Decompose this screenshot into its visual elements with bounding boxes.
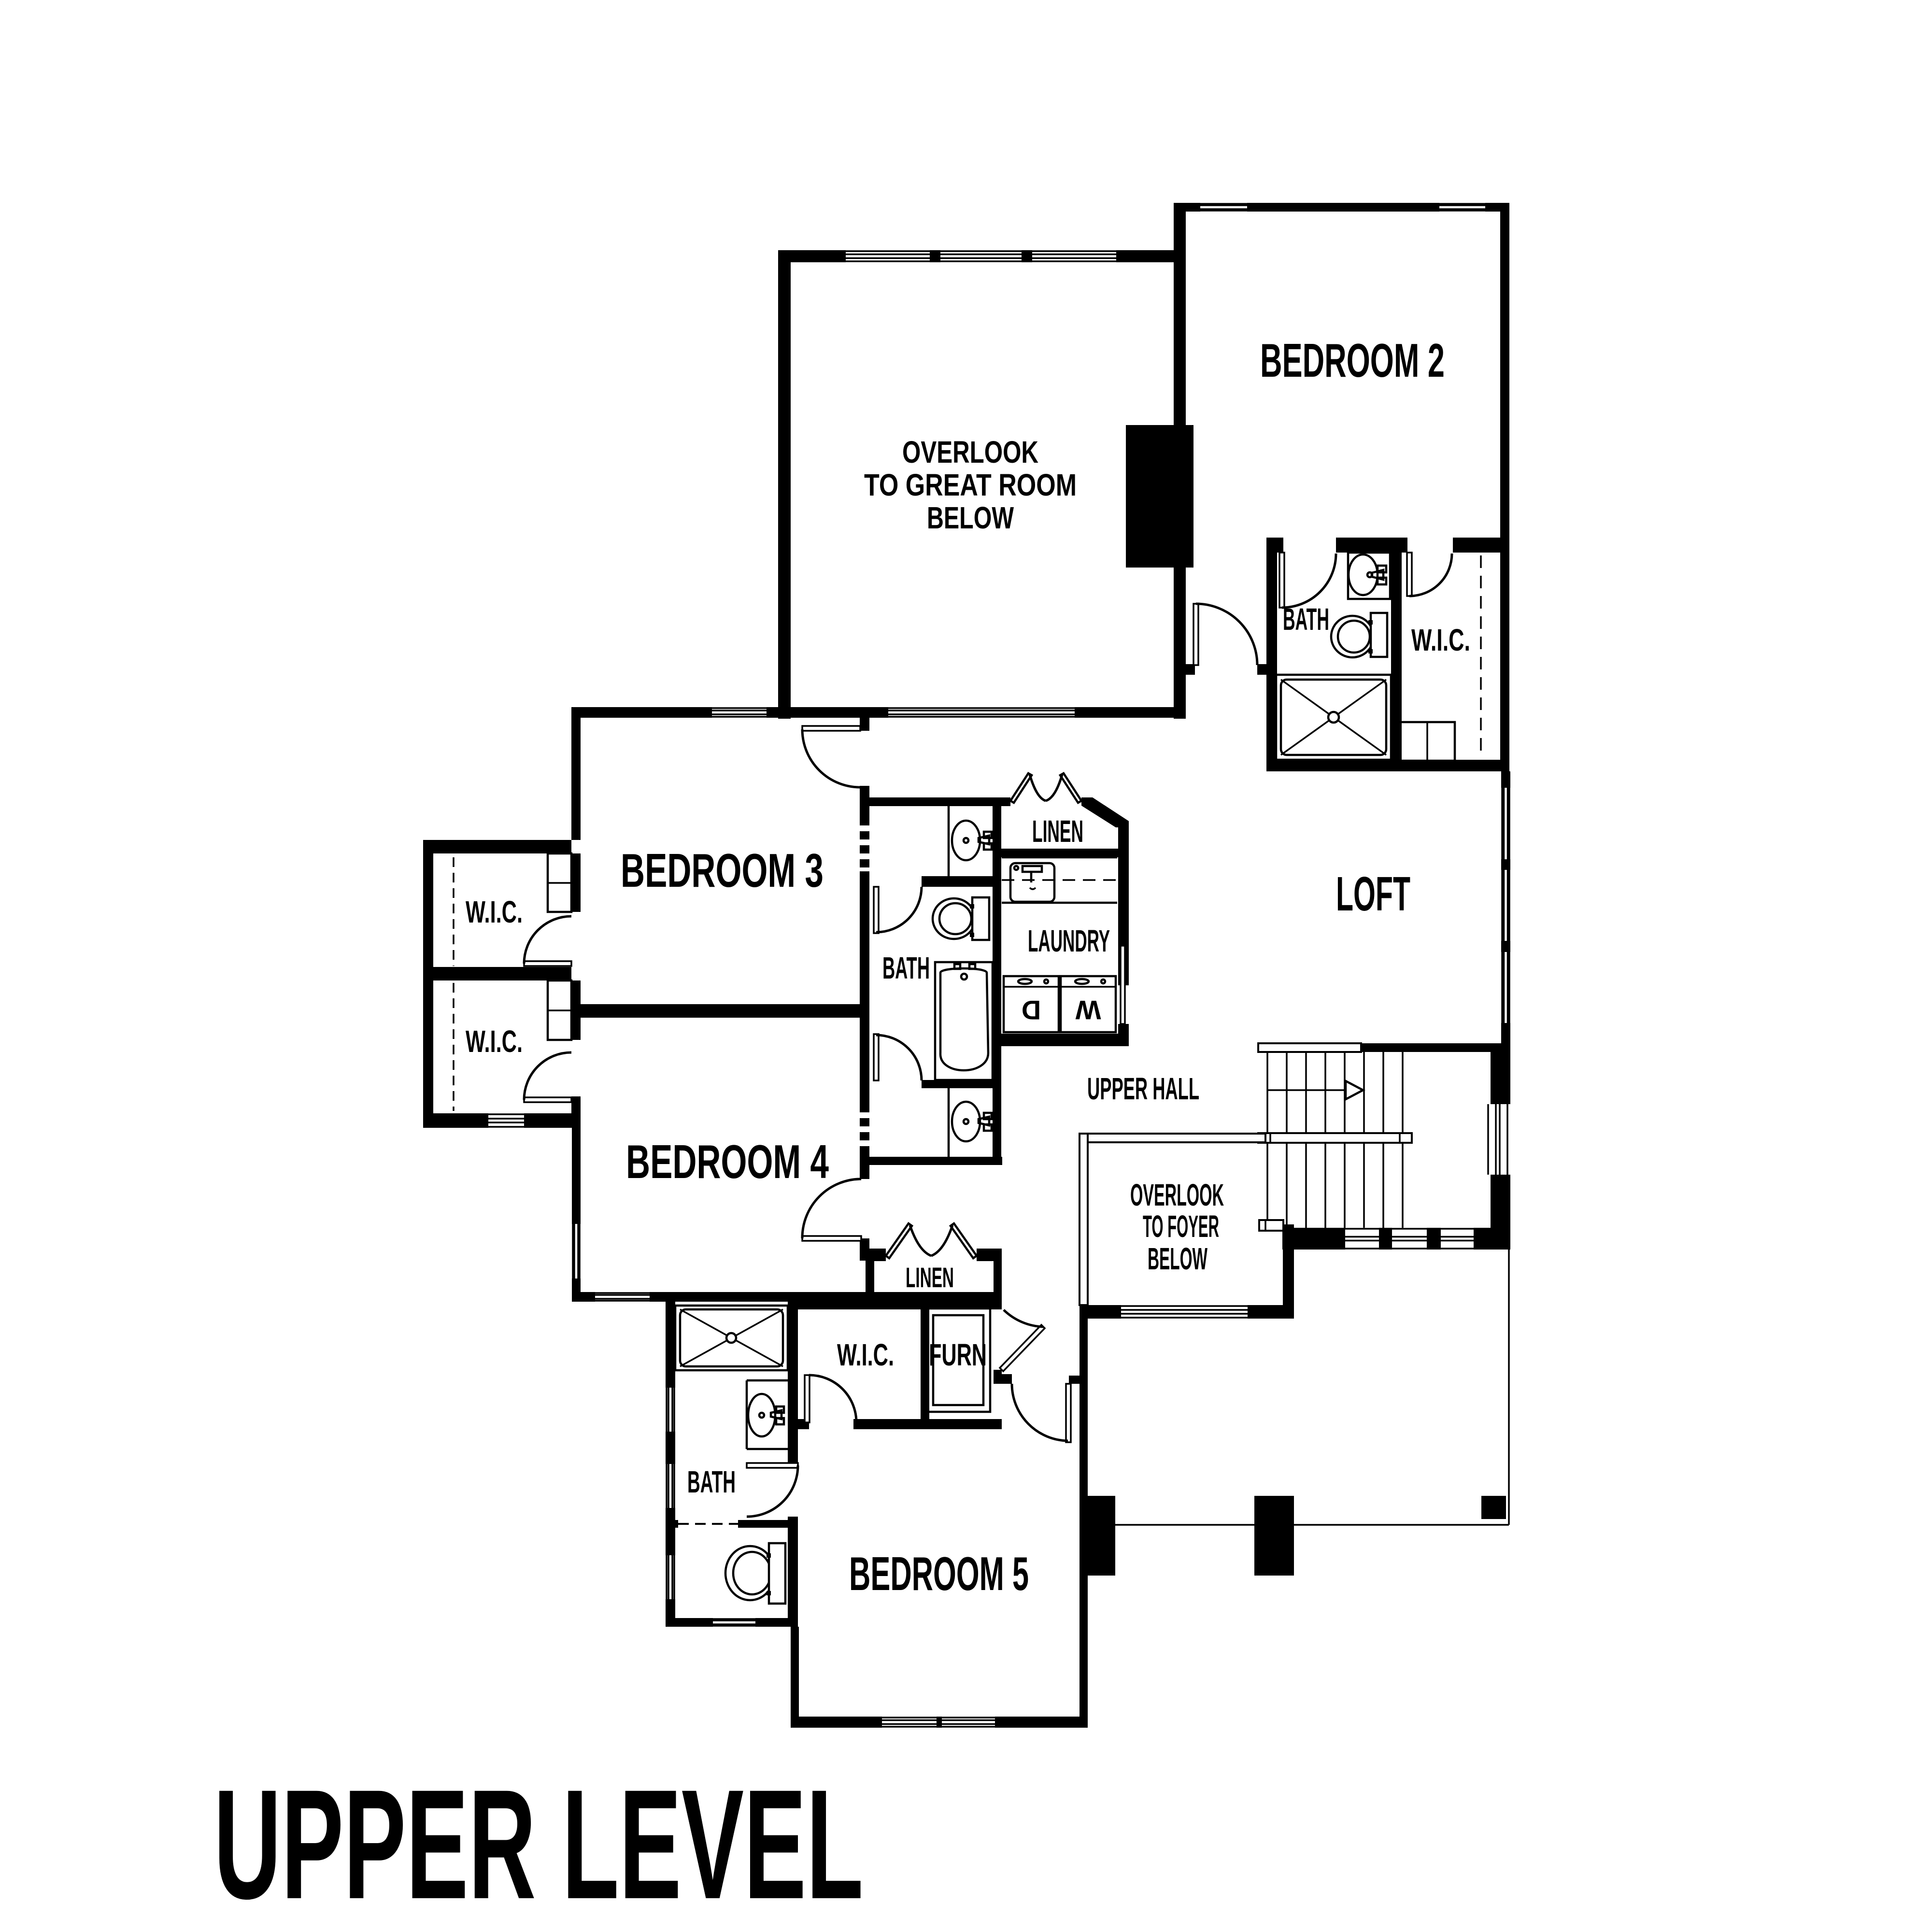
svg-text:OVERLOOK: OVERLOOK [1130, 1178, 1224, 1212]
svg-text:W.I.C.: W.I.C. [837, 1337, 894, 1372]
svg-text:D: D [1022, 995, 1041, 1025]
svg-text:FURN: FURN [929, 1337, 987, 1372]
svg-text:BEDROOM 4: BEDROOM 4 [626, 1135, 829, 1188]
svg-text:OVERLOOK: OVERLOOK [902, 435, 1038, 469]
svg-text:BEDROOM 2: BEDROOM 2 [1260, 334, 1445, 387]
svg-text:W: W [1075, 995, 1101, 1025]
svg-text:UPPER LEVEL: UPPER LEVEL [214, 1758, 864, 1932]
svg-text:BEDROOM 5: BEDROOM 5 [849, 1547, 1029, 1600]
svg-text:TO GREAT ROOM: TO GREAT ROOM [864, 468, 1077, 502]
svg-text:BATH: BATH [1283, 602, 1329, 637]
svg-text:W.I.C.: W.I.C. [466, 1024, 523, 1059]
svg-text:BELOW: BELOW [927, 500, 1014, 535]
svg-text:BELOW: BELOW [1148, 1241, 1207, 1276]
svg-text:UPPER HALL: UPPER HALL [1087, 1071, 1199, 1106]
svg-text:LINEN: LINEN [1032, 814, 1083, 849]
svg-text:W.I.C.: W.I.C. [466, 895, 523, 929]
svg-text:LAUNDRY: LAUNDRY [1028, 923, 1110, 958]
svg-text:BEDROOM 3: BEDROOM 3 [621, 844, 824, 897]
svg-text:W.I.C.: W.I.C. [1411, 623, 1470, 657]
svg-text:LINEN: LINEN [906, 1262, 954, 1293]
svg-text:TO FOYER: TO FOYER [1143, 1209, 1219, 1244]
svg-text:BATH: BATH [882, 951, 930, 985]
svg-text:BATH: BATH [687, 1464, 736, 1499]
svg-text:LOFT: LOFT [1336, 867, 1410, 921]
